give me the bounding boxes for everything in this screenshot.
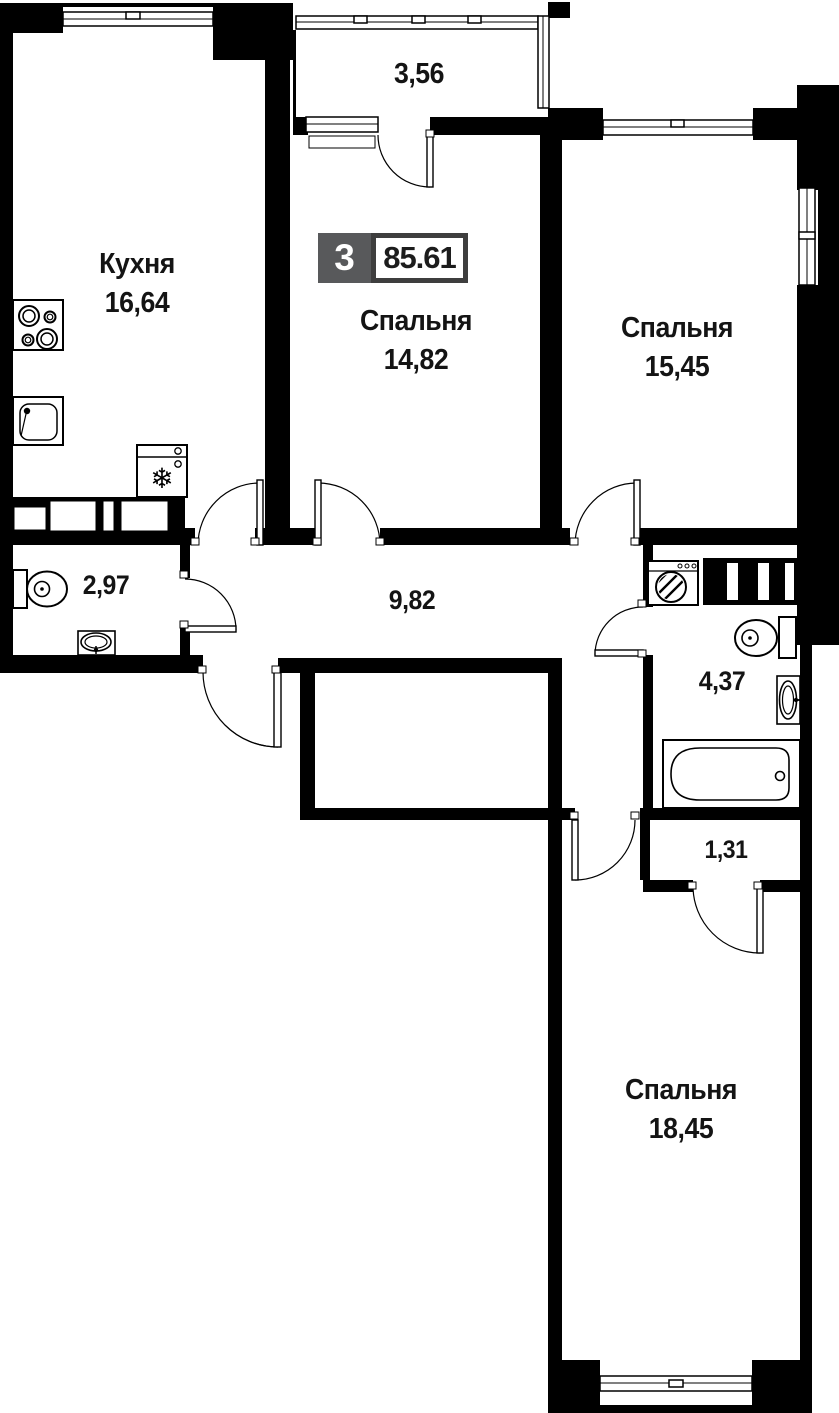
window-icon (600, 1376, 752, 1391)
room-label-balcony: 3,56 (394, 55, 444, 94)
room-label-bedroom-3: Спальня 18,45 (625, 1071, 737, 1149)
washing-machine-icon (648, 561, 698, 606)
window-icon (603, 120, 753, 135)
washbasin-icon (777, 676, 804, 724)
room-count-badge: 3 (318, 233, 371, 283)
walls (0, 2, 839, 1413)
kitchen-sink-icon (6, 397, 63, 445)
toilet-icon (735, 617, 805, 658)
fridge-snowflake-icon: ❄ (150, 463, 173, 494)
window-icon (63, 12, 213, 26)
door-swing-icon (575, 480, 640, 545)
vent-shaft-icon (10, 497, 185, 545)
fridge-icon: ❄ (137, 445, 187, 497)
window-icon (306, 117, 378, 148)
room-label-bathroom-1: 2,97 (83, 566, 130, 605)
door-swing-icon (185, 579, 236, 632)
door-swing-icon (315, 480, 380, 545)
floor-plan-drawing: ❄ (0, 0, 839, 1413)
floor-plan: ❄ (0, 0, 839, 1413)
room-label-vestibule: 1,31 (705, 831, 748, 870)
window-icon (538, 16, 549, 108)
total-area-badge: 85.61 (371, 233, 468, 283)
toilet-icon (6, 570, 67, 608)
bathtub-icon (663, 740, 800, 808)
door-swing-icon (693, 886, 763, 953)
door-swing-icon (198, 480, 263, 545)
door-swing-icon (572, 820, 635, 880)
room-label-bedroom-1: Спальня 14,82 (360, 302, 472, 380)
door-swing-icon (595, 607, 643, 656)
room-label-kitchen: Кухня 16,64 (99, 245, 175, 323)
windows (63, 12, 815, 1391)
door-swing-icon (203, 672, 281, 747)
room-label-bathroom-2: 4,37 (699, 662, 746, 701)
window-icon (296, 16, 538, 29)
washbasin-icon (78, 631, 115, 655)
vent-shaft-icon (703, 558, 797, 605)
room-label-bedroom-2: Спальня 15,45 (621, 309, 733, 387)
plan-summary-badge: 3 85.61 (318, 233, 468, 283)
door-swing-icon (378, 132, 433, 187)
window-icon (799, 188, 815, 285)
room-label-hallway: 9,82 (389, 581, 436, 620)
stove-icon (13, 300, 63, 350)
